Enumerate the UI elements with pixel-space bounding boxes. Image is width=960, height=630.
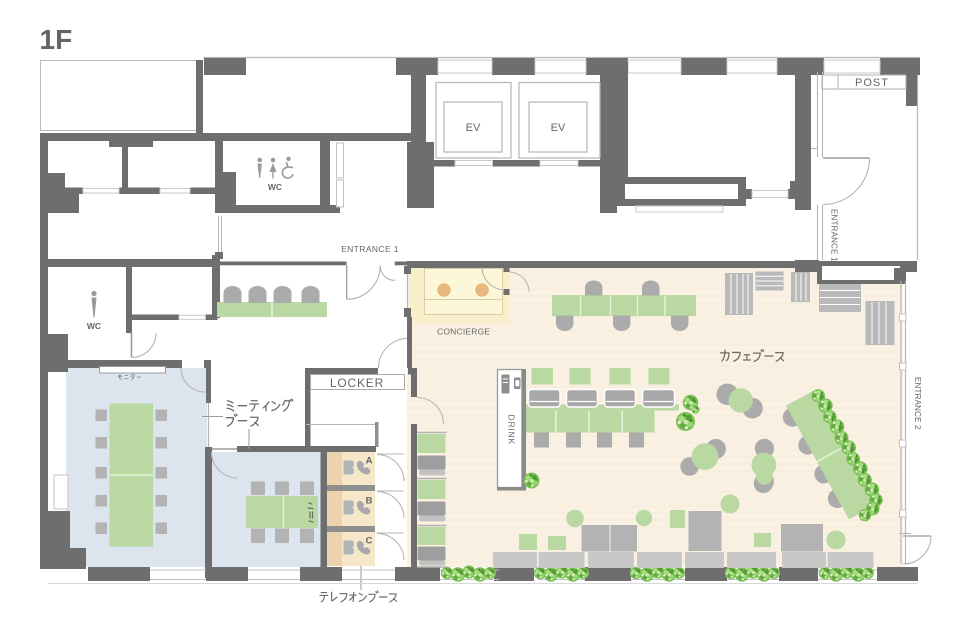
svg-text:WC: WC <box>268 182 282 192</box>
svg-text:A: A <box>366 456 373 467</box>
svg-text:1F: 1F <box>40 24 73 55</box>
svg-text:CONCIERGE: CONCIERGE <box>437 327 490 337</box>
svg-text:WC: WC <box>87 321 101 331</box>
svg-text:ENTRANCE 1: ENTRANCE 1 <box>830 209 839 262</box>
svg-text:LOCKER: LOCKER <box>330 376 384 390</box>
svg-text:C: C <box>366 536 373 547</box>
svg-text:POST: POST <box>855 77 889 89</box>
svg-text:EV: EV <box>551 122 566 134</box>
svg-text:ENTRANCE 1: ENTRANCE 1 <box>341 244 399 254</box>
svg-text:DRINK: DRINK <box>507 415 517 445</box>
svg-text:EV: EV <box>466 122 481 134</box>
svg-text:B: B <box>366 496 373 507</box>
svg-text:ENTRANCE 2: ENTRANCE 2 <box>913 377 922 430</box>
